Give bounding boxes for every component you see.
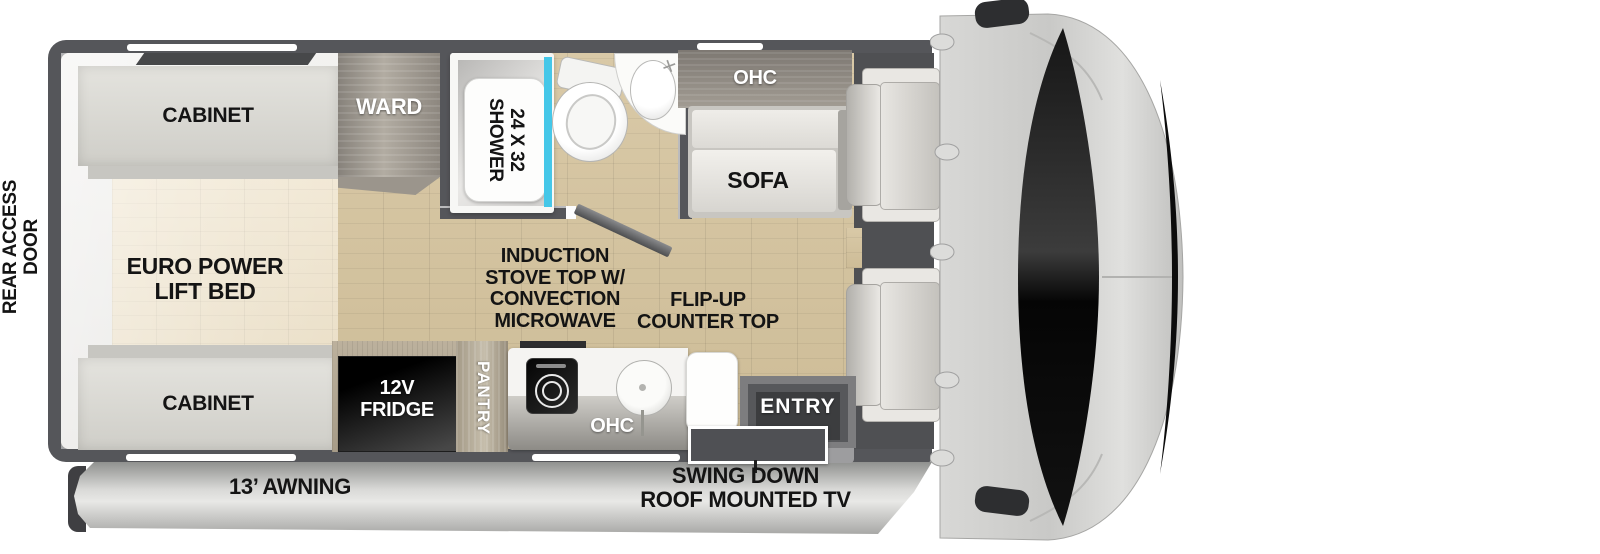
hinge-bump-1 <box>930 34 954 50</box>
cabinet-bottom-base <box>88 345 338 358</box>
wardrobe-label: WARD <box>338 95 440 119</box>
cabinet-bottom-label: CABINET <box>78 393 338 416</box>
hinge-bump-5 <box>930 450 954 466</box>
sink-faucet-stem <box>641 410 644 436</box>
euro-bed-label: EURO POWER LIFT BED <box>100 254 310 304</box>
rear-access-door-label: REAR ACCESS DOOR <box>1 162 47 332</box>
cooktop-slot <box>536 364 566 368</box>
hinge-bump-4 <box>935 372 959 388</box>
window-marker-rear-bottom <box>126 454 296 461</box>
fridge-label: 12V FRIDGE <box>338 378 456 421</box>
window-marker-rear-top <box>127 44 297 51</box>
shower-glass <box>544 57 552 207</box>
sofa-back-cushion <box>692 110 844 148</box>
shower-label: 24 X 32 SHOWER <box>482 80 526 200</box>
flip-up-note-label: FLIP-UP COUNTER TOP <box>608 290 808 333</box>
floor-strip-between-chairs <box>846 228 862 268</box>
roof-vent-rear <box>136 53 316 65</box>
van-cab <box>930 0 1200 554</box>
awning-label: 13’ AWNING <box>178 475 402 499</box>
cooktop-ring-inner <box>542 381 562 401</box>
window-marker-kitchen <box>532 454 680 461</box>
tv-note-label: SWING DOWN ROOF MOUNTED TV <box>618 464 873 512</box>
pantry-label: PANTRY <box>472 342 492 454</box>
counter-ohc-label: OHC <box>572 416 652 438</box>
kitchen-sink-drain <box>639 384 646 391</box>
sofa-label: SOFA <box>688 168 828 193</box>
captain-chair-front-back <box>846 84 884 206</box>
cabinet-top-base <box>88 166 338 179</box>
flip-up-counter <box>686 352 738 432</box>
sofa-ohc-label: OHC <box>668 68 842 90</box>
floorplan-canvas: REAR ACCESS DOOR CABINET CABINET EURO PO… <box>0 0 1600 554</box>
hinge-bump-2 <box>935 144 959 160</box>
cabinet-top-label: CABINET <box>78 105 338 128</box>
window-marker-sofa <box>697 43 763 50</box>
hinge-bump-3 <box>930 244 954 260</box>
entry-label: ENTRY <box>740 396 856 419</box>
tv-unit <box>688 426 828 464</box>
